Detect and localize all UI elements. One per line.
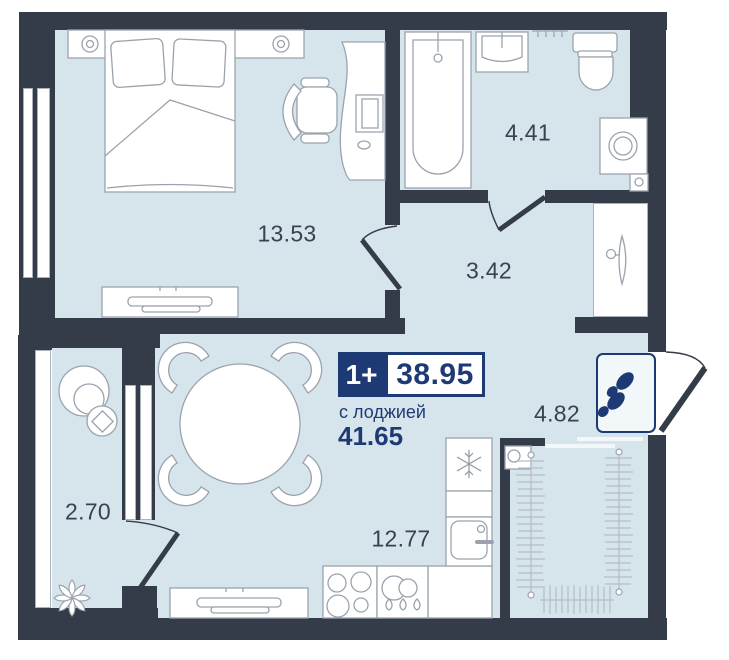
bed: [68, 30, 304, 192]
bathroom-door: [489, 197, 545, 230]
toilet: [573, 33, 617, 90]
unit-subtitle: с лоджией: [339, 402, 426, 423]
doormat: [595, 354, 655, 432]
dining-set: [147, 331, 333, 517]
towel-rail-icon: [532, 31, 568, 37]
floor-plan: 13.53 4.41 3.42 4.82 12.77 2.70 1+ 38.95…: [0, 0, 729, 660]
unit-total-area: 41.65: [338, 421, 403, 452]
balcony-door: [126, 521, 178, 588]
bedroom-door: [362, 226, 400, 289]
bathtub: [405, 32, 471, 188]
boiler-unit: [505, 446, 531, 469]
room-area-hallway: 3.42: [466, 258, 512, 285]
glasses-icon: [386, 599, 420, 610]
loggia-armchair: [59, 366, 117, 436]
furniture-layer: [0, 0, 729, 660]
bathroom-sink: [476, 32, 528, 72]
washing-machine: [600, 118, 648, 191]
dining-table: [180, 364, 300, 484]
dish-cabinet: [377, 566, 428, 618]
tub-faucet-icon: [434, 54, 442, 62]
desk: [340, 42, 385, 180]
room-area-loggia: 2.70: [65, 499, 111, 526]
unit-rooms-count: 1+: [338, 352, 385, 397]
living-tv-stand: [170, 588, 308, 618]
unit-type-badge: 1+ 38.95: [338, 352, 485, 397]
unit-area-value: 38.95: [385, 352, 485, 397]
room-area-entry: 4.82: [534, 401, 580, 428]
entrance-door: [661, 352, 705, 431]
shoe-shelf-line: [577, 437, 643, 441]
plant-icon: [54, 580, 90, 616]
stove: [323, 566, 377, 618]
room-area-bedroom: 13.53: [257, 221, 316, 248]
room-area-kitchen-living: 12.77: [371, 526, 430, 553]
office-chair: [283, 78, 337, 143]
tv-icon: [128, 297, 212, 306]
kitchen-sink: [451, 521, 492, 559]
bedroom-dresser-tv: [102, 287, 238, 317]
room-area-bathroom: 4.41: [505, 120, 551, 147]
shoe-shelf-line: [545, 444, 615, 448]
clothes-rails: [516, 449, 633, 614]
tv-icon: [197, 598, 281, 607]
hanger-icon: [607, 236, 626, 284]
